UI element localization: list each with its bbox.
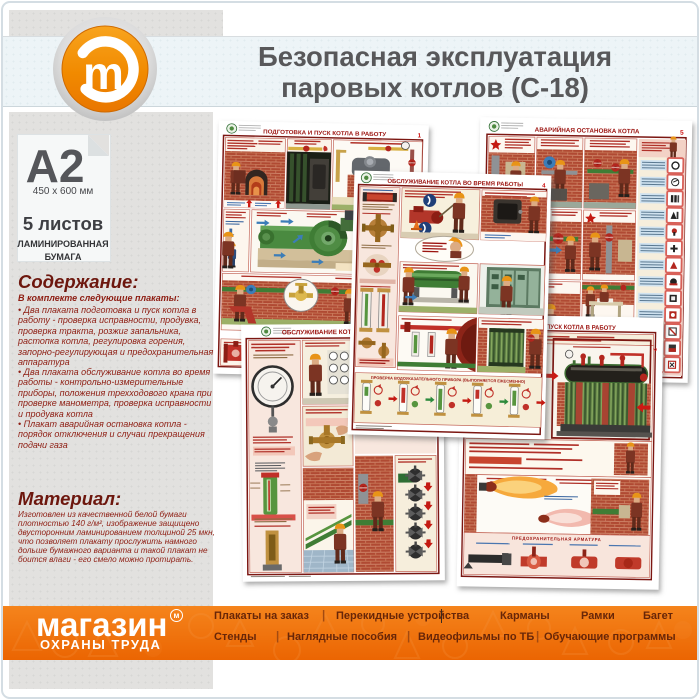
- svg-text:5: 5: [680, 130, 684, 137]
- svg-text:АВАРИЙНАЯ ОСТАНОВКА КОТЛА: АВАРИЙНАЯ ОСТАНОВКА КОТЛА: [535, 125, 640, 136]
- svg-text:ОБСЛУЖИВАНИЕ КОТЛА: ОБСЛУЖИВАНИЕ КОТЛА: [282, 329, 361, 337]
- svg-text:ПУСК КОТЛА В РАБОТУ: ПУСК КОТЛА В РАБОТУ: [546, 324, 616, 332]
- svg-text:1: 1: [418, 133, 422, 140]
- svg-text:4: 4: [542, 183, 546, 189]
- svg-text:m: m: [83, 47, 124, 99]
